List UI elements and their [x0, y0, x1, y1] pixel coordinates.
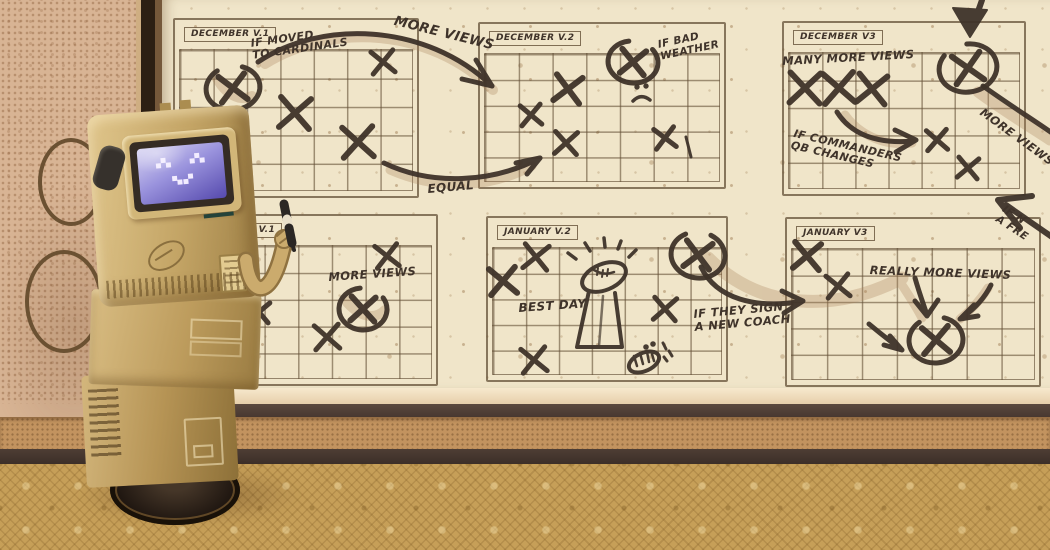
- robot-screen-frame: [129, 134, 235, 212]
- x-mark: [521, 347, 547, 373]
- illustration-scene: DECEMBER V.1 DECEMBER V.2 DECEMBER V3 JA…: [0, 0, 1050, 550]
- robot-football-lace: [155, 249, 173, 261]
- robot-screen-glare: [136, 142, 188, 176]
- x-mark: [789, 72, 820, 103]
- robot-hip-label-inner: [193, 444, 214, 458]
- x-mark: [371, 50, 395, 74]
- circled-x-mark: [907, 315, 965, 366]
- x-mark: [926, 129, 947, 150]
- circled-x-mark: [935, 39, 1000, 96]
- stray-mark: [686, 137, 691, 157]
- arrow-jan3-diag: [869, 324, 902, 350]
- robot-hip-label: [184, 417, 224, 467]
- x-mark: [314, 324, 340, 350]
- x-mark: [279, 97, 311, 129]
- circled-x-mark: [606, 39, 660, 86]
- x-mark: [857, 74, 888, 105]
- robot-head-vents: [106, 271, 253, 299]
- x-mark: [654, 127, 677, 150]
- robot-hip-vents: [88, 388, 122, 459]
- x-mark: [520, 104, 542, 126]
- robot-screen: [136, 142, 227, 205]
- robot-torso-label-1: [190, 319, 243, 341]
- x-mark: [793, 242, 821, 270]
- laughing-mouth-drawing: [626, 342, 672, 377]
- robot-torso-label-2: [189, 341, 241, 358]
- robot-head: [87, 105, 262, 308]
- x-mark: [342, 126, 374, 158]
- football-spotlight-drawing: [568, 238, 636, 347]
- sad-face-drawing: [633, 84, 650, 101]
- robot-football-emblem: [143, 234, 191, 277]
- circled-x-mark: [668, 228, 728, 281]
- x-mark: [553, 74, 582, 103]
- arrow-from-top: [953, 0, 987, 37]
- x-mark: [489, 267, 517, 295]
- x-mark: [523, 244, 549, 270]
- freshly-drawn-stroke: [280, 249, 290, 270]
- x-mark: [653, 297, 676, 320]
- robot-screen-bezel: [121, 127, 242, 221]
- x-mark: [957, 157, 979, 179]
- x-mark: [554, 131, 577, 154]
- x-mark: [823, 72, 855, 104]
